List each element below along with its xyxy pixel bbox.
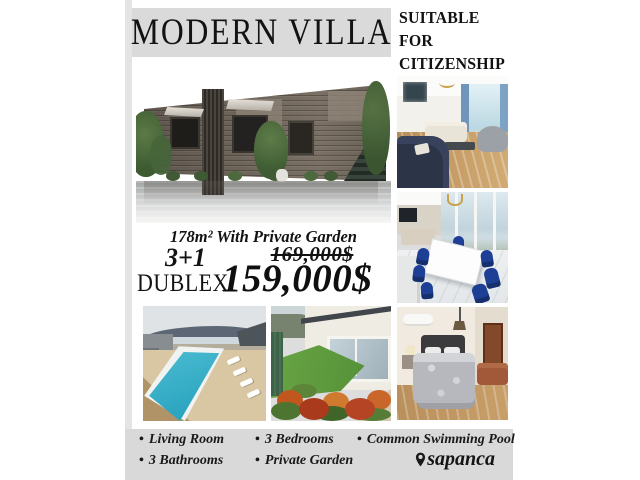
shrub [324,171,338,181]
photo-bedroom [397,307,508,420]
title-band: MODERN VILLA [132,8,391,57]
shrub [194,171,208,181]
new-price: 159,000$ [222,256,372,301]
plant [362,81,390,175]
badge-line-3: CITIZENSHIP [399,52,512,75]
location-row: sapanca [415,448,495,471]
table-lamp [406,345,415,355]
photo-villa-render [136,77,391,223]
location-pin-icon [415,452,426,467]
feature-item: •Private Garden [255,453,353,469]
feature-item: •Common Swimming Pool [357,432,515,448]
air-conditioner [403,314,433,326]
pendant-lamp [453,321,466,330]
armchair [477,126,508,152]
villa-window [288,121,314,155]
badge-line-1: SUITABLE [399,6,512,29]
photo-living-room [397,76,508,188]
leaves [271,402,301,420]
feature-label: Common Swimming Pool [367,432,515,447]
bullet: • [139,453,144,468]
location-label: sapanca [427,448,495,471]
photo-swimming-pool [143,306,266,421]
feature-item: •Living Room [139,432,224,448]
shrub [304,171,318,181]
chandelier [439,78,455,88]
shrub [166,171,180,181]
unit-layout: DUBLEX [137,270,229,298]
tv [399,208,417,222]
flowers [345,398,375,420]
bench-sofa [477,363,508,385]
feature-item: •3 Bathrooms [139,453,223,469]
bed-duvet [413,353,475,403]
shrub [228,171,242,181]
unit-type: 3+1 [165,243,206,273]
pendant-cord [459,307,461,321]
citizenship-badge: SUITABLE FOR CITIZENSHIP [399,6,512,75]
feature-item: •3 Bedrooms [255,432,334,448]
real-estate-flyer: MODERN VILLA SUITABLE FOR CITIZENSHIP [0,0,640,480]
feature-label: Living Room [149,432,224,447]
building-reflection [144,181,378,209]
feature-label: Private Garden [265,453,353,468]
bullet: • [255,432,260,447]
dining-chair [420,282,433,300]
badge-line-2: FOR [399,29,512,52]
window-mullion [493,192,496,258]
bullet: • [357,432,362,447]
page-title: MODERN VILLA [131,12,393,53]
dining-chair [412,264,426,282]
feature-label: 3 Bathrooms [149,453,223,468]
coffee-table [445,142,475,150]
plant [150,135,172,175]
garden-fence [271,332,283,396]
photo-dining-room [397,192,508,303]
bullet: • [255,453,260,468]
features-band: •Living Room •3 Bathrooms •3 Bedrooms •P… [125,429,513,480]
chandelier [447,194,463,206]
flowers [299,398,329,420]
wall-art [403,82,427,102]
feature-label: 3 Bedrooms [265,432,334,447]
bullet: • [139,432,144,447]
photo-private-garden [271,306,391,421]
flyer-left-edge-strip [125,0,132,480]
villa-window [170,117,200,149]
